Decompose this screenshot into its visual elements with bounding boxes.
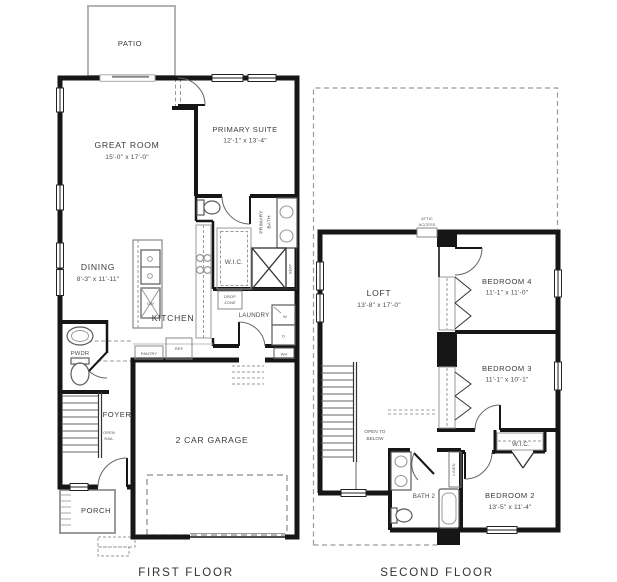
window	[555, 270, 562, 297]
window	[57, 243, 64, 268]
dining-dims: 8'-3" x 11'-11"	[77, 276, 120, 283]
patio-label: PATIO	[118, 39, 142, 48]
garage-label: 2 CAR GARAGE	[176, 435, 249, 445]
wall-block	[437, 530, 460, 545]
wh-label: WH	[281, 352, 288, 357]
primary-suite-dims: 12'-1" x 13'-4"	[223, 138, 267, 145]
patio-area: PATIO	[88, 6, 175, 76]
window	[341, 490, 366, 497]
window	[57, 270, 64, 296]
window	[57, 185, 64, 210]
open-to-below-label: OPEN TO BELOW	[364, 429, 386, 441]
porch-area: PORCH	[60, 490, 135, 556]
wall-block	[437, 332, 457, 367]
bedroom3-door	[475, 405, 500, 430]
bedroom2-door	[465, 452, 492, 479]
window	[555, 362, 562, 390]
toilet-bowl	[71, 363, 89, 385]
bedroom2-dims: 13'-5" x 11'-4"	[488, 504, 532, 511]
entry-step-lower	[98, 547, 129, 556]
entry-step	[98, 537, 135, 547]
garage-apron-dashed	[147, 475, 287, 535]
dryer-label: D	[282, 334, 285, 339]
drop-zone-label-2: ZONE	[224, 300, 236, 305]
wall-block	[437, 232, 457, 247]
bedroom3-dims: 11'-1" x 10'-1"	[485, 377, 529, 384]
toilet-bowl	[396, 509, 412, 522]
seat-label: SEAT	[288, 263, 293, 274]
first-floor-title: FIRST FLOOR	[138, 567, 234, 579]
bedroom3-label: BEDROOM 3	[482, 364, 532, 373]
kitchen-fixtures: DW PANTRY REF	[133, 225, 213, 359]
interior-walls-sf	[390, 332, 558, 530]
svg-text:LINEN: LINEN	[451, 463, 456, 475]
floor-plan: PATIO PORCH	[0, 0, 617, 582]
bedroom3-closet	[439, 367, 471, 428]
first-floor-plan: PATIO PORCH	[57, 6, 300, 556]
primary-wic-label: W.I.C.	[225, 259, 244, 266]
loft-rail-dashed	[388, 410, 437, 414]
primary-suite-door	[178, 78, 205, 105]
bifold-doors	[455, 372, 471, 420]
bath2-door	[412, 453, 434, 480]
cooktop	[197, 255, 211, 274]
svg-text:BATH: BATH	[267, 215, 273, 229]
sliding-door	[100, 75, 155, 82]
porch-deck-hatch	[61, 495, 71, 525]
floor-plan-canvas: PATIO PORCH	[0, 0, 617, 582]
primary-bath-door	[222, 196, 250, 224]
double-doors	[512, 452, 534, 468]
toilet-bowl	[204, 201, 220, 214]
foyer-label: FOYER	[103, 410, 132, 419]
roof-outline-dashed	[314, 88, 558, 545]
toilet-tank	[197, 200, 204, 215]
svg-text:PRIMARY: PRIMARY	[259, 210, 265, 234]
great-room-label: GREAT ROOM	[95, 140, 160, 150]
wic2-label: W.I.C.	[512, 441, 530, 448]
window	[317, 294, 324, 322]
garage-ceiling-dashes	[232, 366, 264, 384]
ref-label: REF	[175, 346, 184, 351]
second-floor-plan: ATTIC ACCESS LINEN	[314, 88, 562, 545]
svg-text:OPEN TO: OPEN TO	[364, 429, 386, 434]
kitchen-label: KITCHEN	[152, 313, 195, 323]
window	[57, 88, 64, 112]
washer-label: W	[283, 314, 287, 319]
double-vanity	[391, 452, 411, 490]
window	[70, 484, 88, 491]
pwdr-label: PWDR	[71, 351, 90, 357]
loft-label: LOFT	[367, 288, 392, 298]
bedroom4-door	[455, 248, 482, 275]
stairs-first-floor: OPEN RAIL	[62, 392, 115, 458]
laundry-door	[239, 322, 265, 346]
bedroom4-dims: 11'-1" x 11'-0"	[486, 290, 529, 297]
svg-text:ACCESS: ACCESS	[418, 222, 435, 227]
svg-text:BELOW: BELOW	[366, 436, 384, 441]
laundry-label: LAUNDRY	[239, 312, 270, 319]
window	[317, 262, 324, 290]
primary-suite-label: PRIMARY SUITE	[212, 125, 277, 134]
loft-dims: 13'-8" x 17'-0"	[357, 302, 401, 309]
bifold-doors	[455, 277, 471, 329]
porch-label: PORCH	[81, 506, 111, 515]
laundry-fixtures: DROP ZONE W D WH	[218, 291, 295, 359]
bedroom4-label: BEDROOM 4	[482, 277, 532, 286]
bedroom2-wic	[497, 433, 543, 468]
svg-text:ATTIC: ATTIC	[421, 216, 433, 221]
dining-label: DINING	[81, 262, 115, 272]
open-rail-label-2: RAIL	[104, 436, 114, 441]
pantry-label: PANTRY	[141, 351, 158, 356]
great-room-dims: 15'-0" x 17'-0"	[105, 154, 149, 161]
bedroom4-closet	[439, 247, 471, 330]
second-floor-title: SECOND FLOOR	[380, 567, 494, 579]
drop-zone-label-1: DROP	[224, 294, 236, 299]
sink	[67, 327, 93, 345]
front-door	[98, 458, 127, 487]
dishwasher-label: DW	[147, 301, 154, 306]
stairs-second-floor	[321, 362, 437, 491]
bedroom2-label: BEDROOM 2	[485, 491, 535, 500]
open-rail-label-1: OPEN	[103, 430, 115, 435]
window	[487, 527, 517, 534]
bath2-label: BATH 2	[413, 493, 436, 500]
window	[248, 75, 276, 82]
powder-door	[89, 352, 107, 378]
primary-bath-label: PRIMARY BATH	[259, 210, 273, 234]
attic-access: ATTIC ACCESS	[417, 216, 437, 237]
window	[212, 75, 243, 82]
